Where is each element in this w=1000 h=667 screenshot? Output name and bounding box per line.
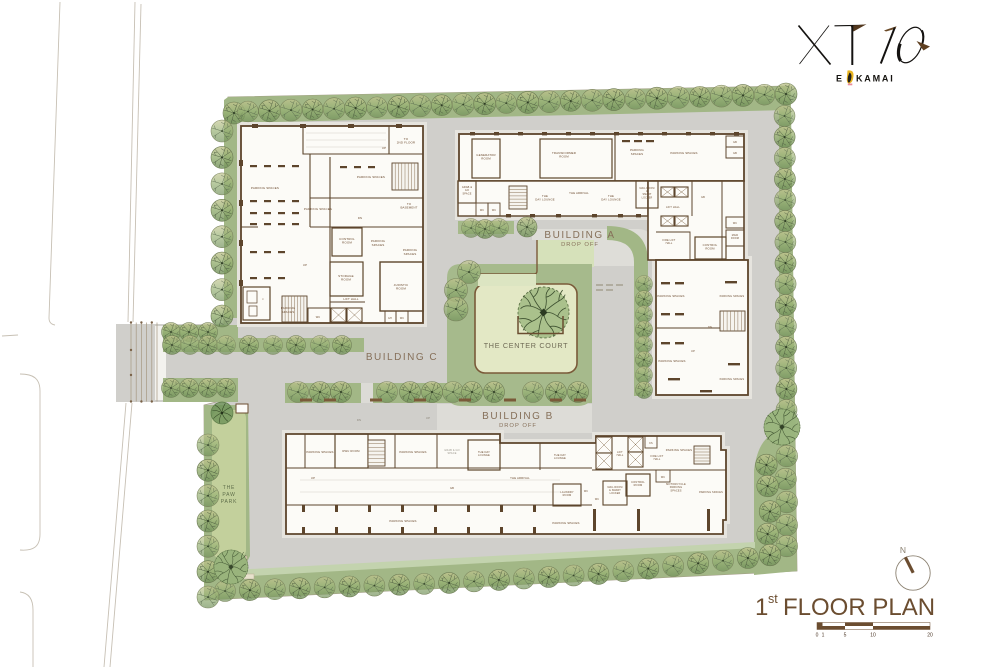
svg-text:FLOOR PLAN: FLOOR PLAN [783, 594, 935, 621]
svg-text:PARKING SPACES: PARKING SPACES [357, 175, 385, 179]
svg-text:BASEMENT: BASEMENT [400, 206, 417, 210]
svg-text:PARKING SPACES: PARKING SPACES [306, 450, 333, 454]
svg-text:WC: WC [492, 209, 496, 212]
svg-text:GH: GH [388, 317, 392, 320]
svg-text:ROOM: ROOM [342, 241, 352, 245]
svg-text:SPACES: SPACES [404, 252, 417, 256]
svg-text:SPACE: SPACE [462, 192, 471, 195]
svg-text:PAW: PAW [222, 492, 235, 498]
svg-text:WC: WC [595, 498, 599, 501]
svg-text:THE CENTER COURT: THE CENTER COURT [484, 341, 569, 350]
svg-text:UP: UP [303, 263, 307, 267]
svg-text:E: E [836, 74, 844, 84]
svg-text:LIFT HALL: LIFT HALL [343, 297, 359, 301]
svg-text:PARKING SPACES: PARKING SPACES [657, 294, 684, 298]
svg-text:SPACE: SPACE [447, 452, 456, 455]
svg-text:BUILDING A: BUILDING A [544, 230, 615, 241]
svg-text:SPACES: SPACES [372, 243, 385, 247]
svg-text:ROOM: ROOM [705, 246, 715, 250]
svg-text:PARKING SPACES: PARKING SPACES [720, 294, 745, 298]
svg-text:ROOM: ROOM [563, 493, 572, 497]
svg-text:PARKING SPACES: PARKING SPACES [699, 491, 723, 494]
svg-text:KAMAI: KAMAI [856, 74, 895, 84]
svg-text:BUILDING C: BUILDING C [366, 352, 438, 363]
svg-text:20: 20 [927, 633, 933, 639]
svg-text:SPACES: SPACES [631, 152, 643, 156]
svg-text:THE ARRIVAL: THE ARRIVAL [569, 191, 589, 195]
svg-text:WC: WC [661, 476, 665, 479]
svg-text:PARKING SPACES: PARKING SPACES [552, 521, 579, 525]
svg-text:ROOM: ROOM [396, 287, 406, 291]
svg-text:RWU ROOM: RWU ROOM [342, 449, 360, 453]
svg-text:1: 1 [755, 594, 768, 621]
svg-text:WC: WC [400, 317, 404, 320]
svg-text:DAY LOUNGE: DAY LOUNGE [535, 197, 555, 201]
svg-text:WC: WC [584, 490, 588, 493]
svg-text:GB: GB [701, 196, 705, 199]
svg-text:PARKING SPACES: PARKING SPACES [389, 519, 416, 523]
svg-text:PARKING SPACES: PARKING SPACES [670, 151, 697, 155]
svg-text:LOCKER: LOCKER [610, 492, 621, 495]
svg-text:PARKING SPACES: PARKING SPACES [399, 450, 426, 454]
svg-text:THE: THE [223, 485, 235, 491]
svg-text:HALL: HALL [617, 454, 624, 457]
svg-text:ROOM: ROOM [481, 157, 491, 161]
svg-text:0: 0 [816, 633, 819, 639]
svg-text:2ND FLOOR: 2ND FLOOR [397, 141, 416, 145]
svg-text:st: st [768, 592, 778, 606]
svg-text:KS: KS [649, 442, 653, 445]
svg-text:HALL: HALL [666, 242, 673, 245]
svg-text:ROOM: ROOM [634, 483, 643, 487]
svg-text:UP: UP [382, 146, 386, 150]
svg-text:UP: UP [426, 416, 430, 420]
svg-text:UP: UP [691, 349, 695, 353]
svg-text:PARKING SPACES: PARKING SPACES [251, 186, 279, 190]
svg-text:10: 10 [870, 633, 876, 639]
svg-text:LOUNGE: LOUNGE [554, 456, 566, 460]
svg-text:UP: UP [311, 476, 315, 480]
svg-text:DROP OFF: DROP OFF [499, 423, 537, 429]
svg-text:ROOM: ROOM [731, 237, 739, 240]
svg-text:THE ARRIVAL: THE ARRIVAL [510, 476, 530, 480]
svg-text:GB: GB [733, 152, 737, 155]
svg-text:BUILDING B: BUILDING B [482, 411, 554, 422]
svg-text:WC: WC [733, 222, 737, 225]
svg-text:HALL: HALL [654, 458, 661, 461]
svg-text:PARKING SPACES: PARKING SPACES [304, 207, 332, 211]
svg-text:PARKING SPACES: PARKING SPACES [666, 448, 692, 452]
svg-text:LIFT HALL: LIFT HALL [666, 205, 680, 209]
svg-text:DN: DN [708, 325, 712, 329]
svg-text:WC: WC [480, 209, 484, 212]
svg-text:LOCKER: LOCKER [642, 196, 653, 199]
svg-text:5: 5 [844, 633, 847, 639]
svg-text:SPACES: SPACES [670, 488, 681, 492]
svg-text:1: 1 [822, 633, 825, 639]
svg-text:WC: WC [316, 315, 321, 319]
svg-text:PARKING SPACES: PARKING SPACES [658, 359, 685, 363]
svg-text:DROP OFF: DROP OFF [561, 242, 599, 248]
svg-text:DN: DN [357, 418, 361, 422]
svg-text:×: × [262, 297, 264, 301]
svg-text:PARK: PARK [221, 499, 237, 505]
svg-text:DN: DN [358, 216, 362, 220]
svg-text:ROOM: ROOM [341, 278, 351, 282]
svg-text:N: N [900, 545, 906, 555]
svg-text:SPACES: SPACES [282, 310, 295, 314]
svg-text:ROOM: ROOM [559, 155, 569, 159]
svg-text:GB: GB [450, 486, 454, 490]
svg-text:PARKING SPACES: PARKING SPACES [720, 377, 745, 381]
svg-text:DAY LOUNGE: DAY LOUNGE [601, 197, 621, 201]
svg-text:GB: GB [733, 141, 737, 144]
svg-text:LOUNGE: LOUNGE [478, 453, 490, 457]
